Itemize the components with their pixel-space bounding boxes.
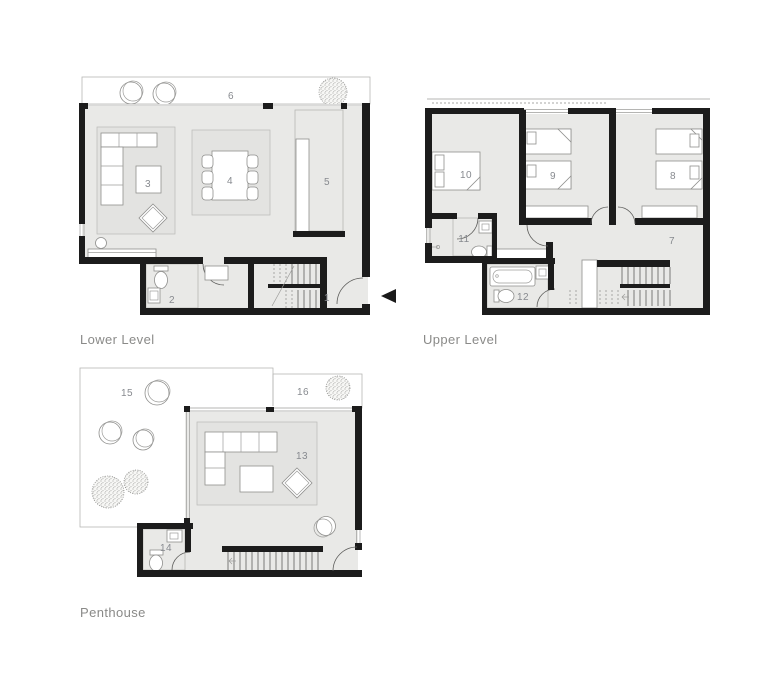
chair bbox=[247, 155, 258, 168]
sideboard bbox=[88, 249, 156, 258]
room-number-11: 11 bbox=[458, 234, 469, 245]
dining-room-4 bbox=[192, 130, 270, 215]
room-number-1: 1 bbox=[324, 293, 330, 304]
pillow bbox=[435, 155, 444, 170]
toilet-tank bbox=[154, 266, 168, 271]
floorplan-sheet: 1 2 3 4 5 6 bbox=[0, 0, 783, 695]
toilet bbox=[498, 290, 514, 303]
pillow bbox=[435, 172, 444, 187]
sink bbox=[479, 221, 492, 233]
penthouse-plan: 13 14 15 16 bbox=[78, 366, 368, 580]
room-number-6: 6 bbox=[228, 91, 234, 102]
room-number-5: 5 bbox=[324, 177, 330, 188]
stair-landing bbox=[582, 260, 597, 308]
coffee-table bbox=[240, 466, 273, 492]
upper-level-label: Upper Level bbox=[423, 332, 498, 347]
chair bbox=[202, 171, 213, 184]
room-number-16: 16 bbox=[297, 387, 309, 398]
room-number-12: 12 bbox=[517, 292, 529, 303]
floor-lamp bbox=[96, 238, 107, 249]
room-number-10: 10 bbox=[460, 170, 472, 181]
room-number-7: 7 bbox=[669, 236, 675, 247]
upper-level-plan: 7 8 9 10 11 12 bbox=[424, 94, 716, 318]
closet bbox=[205, 266, 228, 280]
wardrobe bbox=[642, 206, 697, 218]
counter bbox=[296, 139, 309, 232]
room-number-15: 15 bbox=[121, 388, 133, 399]
tree bbox=[326, 376, 350, 400]
lower-level-label: Lower Level bbox=[80, 332, 155, 347]
chair bbox=[202, 187, 213, 200]
terrace-6 bbox=[82, 77, 370, 106]
left-arrow-icon bbox=[381, 289, 396, 303]
room-number-2: 2 bbox=[169, 295, 175, 306]
pillow bbox=[527, 132, 536, 144]
room-number-4: 4 bbox=[227, 176, 233, 187]
room-number-9: 9 bbox=[550, 171, 556, 182]
chair bbox=[247, 187, 258, 200]
toilet bbox=[150, 555, 163, 571]
pillow bbox=[690, 166, 699, 179]
lower-level-plan: 1 2 3 4 5 6 bbox=[78, 74, 374, 318]
room-number-14: 14 bbox=[160, 543, 172, 554]
chair bbox=[247, 171, 258, 184]
penthouse-label: Penthouse bbox=[80, 605, 146, 620]
wardrobe bbox=[523, 206, 588, 218]
chair bbox=[202, 155, 213, 168]
pillow bbox=[527, 165, 536, 177]
terrace-16 bbox=[273, 374, 362, 408]
sink bbox=[167, 530, 182, 542]
pillow bbox=[690, 134, 699, 147]
tree bbox=[319, 78, 347, 106]
toilet bbox=[155, 272, 168, 289]
sofa bbox=[101, 133, 157, 147]
room-number-13: 13 bbox=[296, 451, 308, 462]
bedroom-10 bbox=[432, 152, 480, 190]
room-number-3: 3 bbox=[145, 179, 151, 190]
tree bbox=[124, 470, 148, 494]
room-number-8: 8 bbox=[670, 171, 676, 182]
planter bbox=[145, 381, 169, 405]
sink bbox=[536, 266, 549, 279]
tree bbox=[92, 476, 124, 508]
